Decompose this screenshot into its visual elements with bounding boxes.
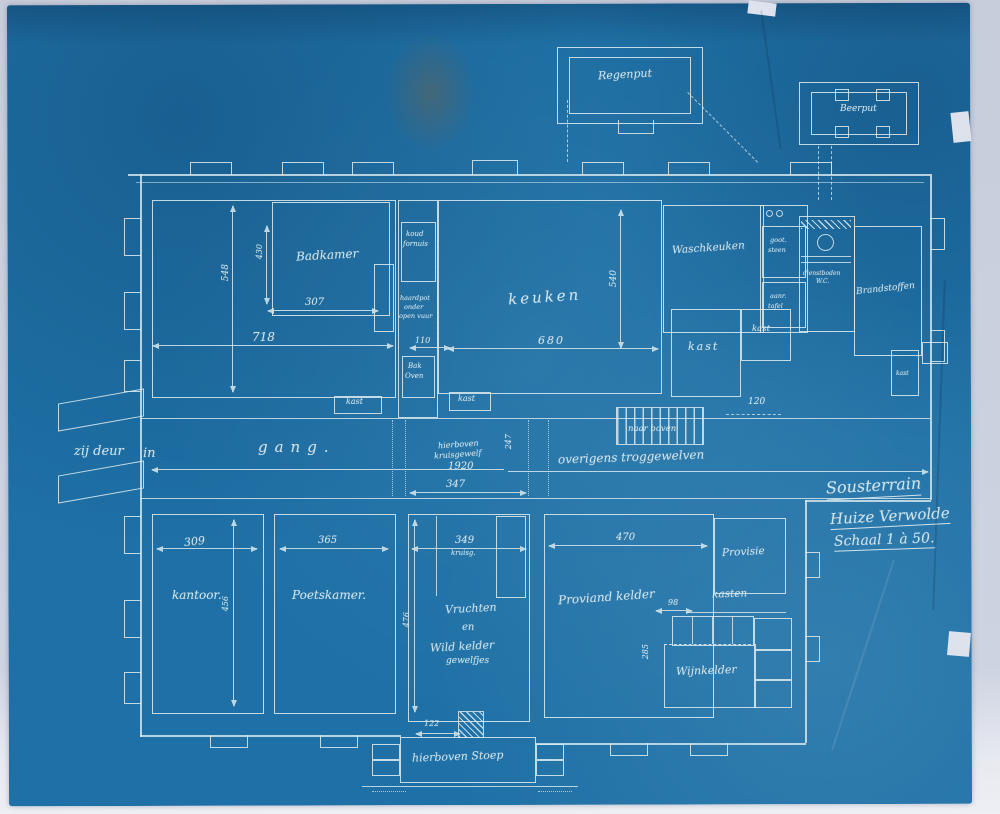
dim-arrow: [448, 348, 658, 349]
poetskamer-label: Poetskamer.: [292, 588, 366, 602]
dim-309: 309: [183, 534, 205, 549]
wc-hatch: [801, 220, 851, 229]
dim-arrow: [414, 520, 415, 712]
squiggle-mark: [372, 791, 406, 792]
dim-430: 430: [255, 244, 264, 259]
wall-pier: [124, 672, 141, 704]
dim-arrow: [410, 347, 450, 348]
bakoven-label: Oven: [405, 372, 423, 380]
dim-122: 122: [424, 719, 439, 728]
wall-line: [140, 735, 401, 737]
dim-548: 548: [221, 264, 231, 281]
dim-98: 98: [668, 598, 678, 607]
shelf-line: [686, 612, 786, 613]
paper-tear: [947, 631, 971, 657]
regenput-outline-inner: [569, 57, 691, 114]
wc-label: dienstboden: [803, 270, 840, 277]
dim-120: 120: [748, 397, 765, 407]
alcove-wall: [436, 516, 437, 596]
dim-307: 307: [305, 297, 324, 308]
dim-285: 285: [641, 644, 650, 659]
wall-line: [805, 500, 931, 502]
zij-deur-label: zij deur: [74, 444, 124, 459]
in-label: in: [143, 446, 156, 461]
scanned-blueprint: Regenput Beerput Badkamer k: [0, 0, 1000, 814]
wall-pier: [124, 360, 141, 392]
cellar-compartment: [754, 650, 792, 680]
kast-label: kast: [458, 394, 475, 403]
dim-680: 680: [538, 334, 565, 347]
dim-470: 470: [616, 532, 635, 543]
cellar-compartment: [754, 618, 792, 650]
dim-540: 540: [609, 270, 619, 287]
dim-arrow: [416, 733, 460, 734]
kast-label: kast: [688, 340, 719, 353]
wc-line: [801, 262, 851, 263]
dim-arrow: [508, 471, 928, 472]
wall-pier: [805, 552, 820, 578]
dim-arrow: [268, 310, 378, 311]
wall-line: [140, 174, 142, 737]
beerput-notch: [835, 89, 849, 101]
buttress: [790, 162, 832, 175]
dim-365: 365: [318, 535, 337, 546]
boiler-icon: [817, 234, 834, 251]
dim-arrow: [549, 545, 707, 546]
room-kantoor: [152, 514, 264, 714]
cellar-compartment: [754, 680, 792, 708]
chimney-flue: [374, 264, 394, 332]
room-kast-small: [741, 309, 791, 361]
kasten-label: kasten: [712, 587, 748, 600]
alcove-wall: [496, 516, 526, 598]
regenput-tab: [618, 120, 654, 134]
dim-247: 247: [504, 434, 513, 449]
vruchten-label: Vruchten: [445, 601, 497, 617]
dotted-bay-line: [528, 420, 529, 496]
beerput-notch: [876, 126, 890, 138]
gang-label: gang.: [258, 438, 336, 456]
dim-arrow: [232, 206, 233, 392]
haardpot-label: open vuur: [399, 312, 432, 320]
buttress: [472, 160, 518, 175]
tap-mark: [766, 210, 773, 217]
dim-arrow: [233, 520, 234, 706]
buttress: [282, 162, 324, 175]
title-schaal: Schaal 1 à 50.: [834, 530, 935, 551]
wine-bin-divider: [732, 616, 733, 644]
gootsteen-label: steen: [768, 246, 786, 254]
dotted-bay-line: [548, 420, 549, 496]
squiggle-mark: [538, 791, 572, 792]
wc-line: [801, 256, 851, 257]
gang-wall: [140, 418, 930, 419]
stoep-jamb: [536, 744, 564, 760]
dim-476: 476: [402, 612, 411, 627]
dim-456: 456: [221, 596, 230, 611]
stoep-jamb: [536, 760, 564, 776]
tap-mark: [776, 210, 783, 217]
wall-line: [805, 500, 807, 743]
wall-line: [136, 182, 924, 183]
buttress: [610, 743, 648, 756]
wall-line: [535, 743, 806, 745]
dim-arrow: [153, 345, 393, 346]
bakoven-label: Bak: [408, 362, 422, 370]
koud-fornuis-label: fornuis: [403, 240, 428, 248]
buttress: [352, 162, 394, 175]
wijnkelder-label: Wijnkelder: [676, 663, 737, 678]
beerput-notch: [876, 89, 890, 101]
wall-pier: [124, 292, 141, 330]
wall-pier: [124, 218, 141, 256]
dim-arrow: [620, 210, 621, 348]
wall-pier: [930, 218, 945, 250]
aanregttafel-label: aanr.: [770, 292, 786, 300]
wall-pier: [805, 636, 820, 662]
naar-boven-label: naar boven: [628, 424, 676, 434]
dim-347: 347: [446, 479, 465, 490]
buttress: [320, 735, 358, 748]
buttress: [210, 735, 248, 748]
wc-label: W.C.: [816, 278, 829, 285]
kast-label: kast: [896, 370, 909, 377]
dim-349: 349: [455, 535, 474, 546]
beerput-label: Beerput: [840, 104, 877, 114]
dim-arrow: [410, 492, 526, 493]
buttress: [190, 162, 232, 175]
provisie-label: Provisie: [722, 545, 765, 559]
vruchten-label: en: [462, 622, 474, 633]
kruisg-label: kruisg.: [451, 549, 476, 557]
room-kast-large: [671, 309, 741, 397]
beerput-notch: [835, 126, 849, 138]
gootsteen-label: goot.: [770, 236, 787, 244]
dashed-opening: [726, 414, 781, 415]
buttress: [582, 162, 624, 175]
kantoor-label: kantoor.: [172, 588, 222, 602]
dotted-bay-line: [405, 420, 406, 496]
year-1920-label: 1920: [448, 461, 473, 472]
window-bay: [922, 342, 948, 364]
dim-arrow: [656, 610, 692, 611]
vruchten-label: gewelfjes: [446, 656, 489, 666]
dim-718: 718: [252, 330, 275, 344]
dim-arrow: [266, 226, 267, 304]
drain-dashed-line: [567, 100, 568, 162]
wine-bin-divider: [712, 616, 713, 644]
wall-pier: [124, 516, 141, 554]
dim-arrow: [157, 548, 257, 549]
wine-bin-divider: [692, 616, 693, 644]
dim-110: 110: [415, 336, 430, 345]
wall-pier: [124, 600, 141, 638]
stoep-jamb: [372, 744, 400, 760]
kast-label: kast: [346, 397, 363, 406]
stoep-jamb: [372, 760, 400, 776]
gang-wall: [140, 498, 930, 499]
light-shaft-hatch: [458, 711, 484, 738]
paper-tear: [950, 111, 971, 143]
dotted-bay-line: [392, 420, 393, 496]
dim-arrow: [280, 548, 388, 549]
buttress: [668, 162, 710, 175]
ground-line: [362, 786, 578, 787]
koud-fornuis-label: koud: [406, 230, 423, 238]
haardpot-label: onder: [404, 303, 423, 311]
kast-label: kast: [752, 324, 770, 334]
haardpot-label: haardpot: [400, 294, 430, 302]
buttress: [690, 743, 728, 756]
